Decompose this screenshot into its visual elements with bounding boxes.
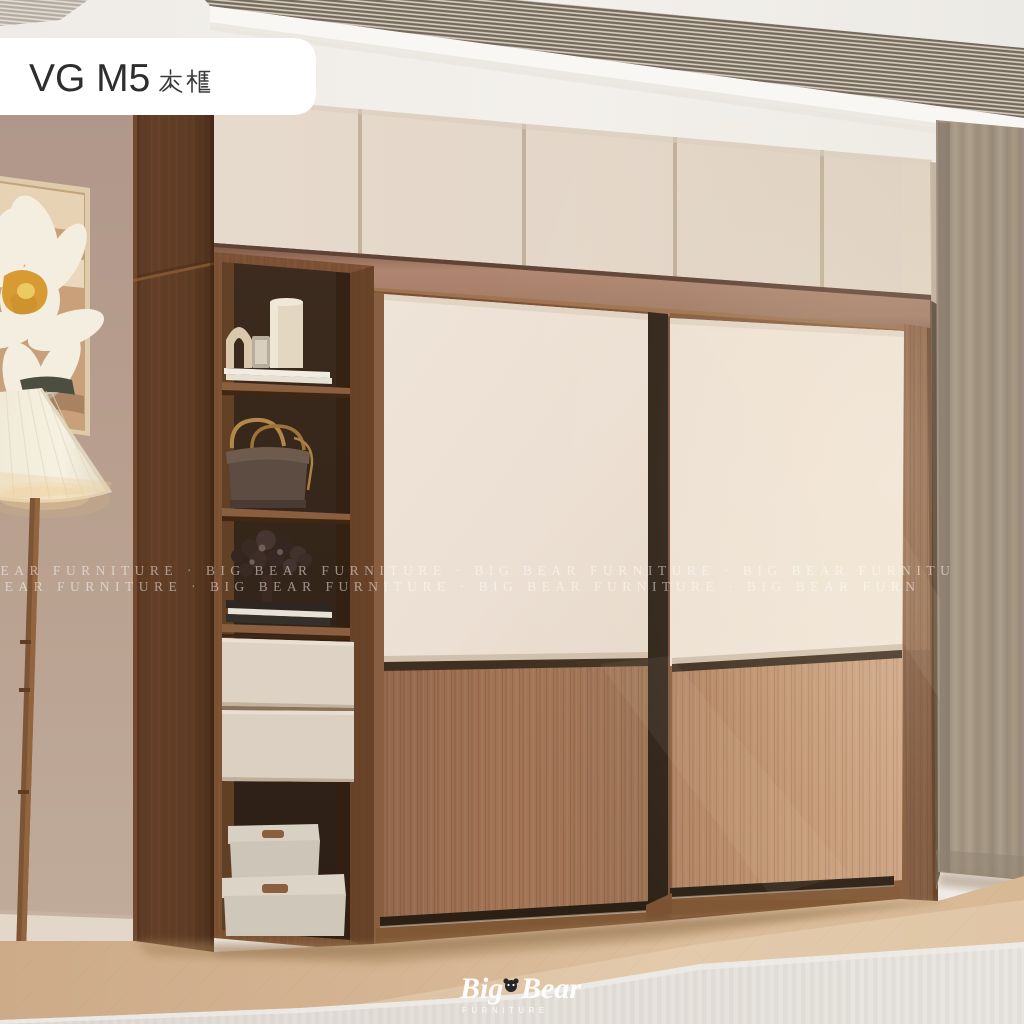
svg-text:BEAR FURNITURE · BIG BEAR FURN: BEAR FURNITURE · BIG BEAR FURNITURE · BI… (0, 563, 955, 578)
svg-text:G BEAR FURNITURE · BIG BEAR FU: G BEAR FURNITURE · BIG BEAR FURNITURE · … (0, 579, 921, 594)
svg-text:VG M5: VG M5 (29, 57, 150, 100)
svg-text:Bear: Bear (520, 972, 581, 1005)
svg-text:Big: Big (459, 972, 503, 1005)
svg-text:FURNITURE: FURNITURE (462, 1006, 549, 1015)
